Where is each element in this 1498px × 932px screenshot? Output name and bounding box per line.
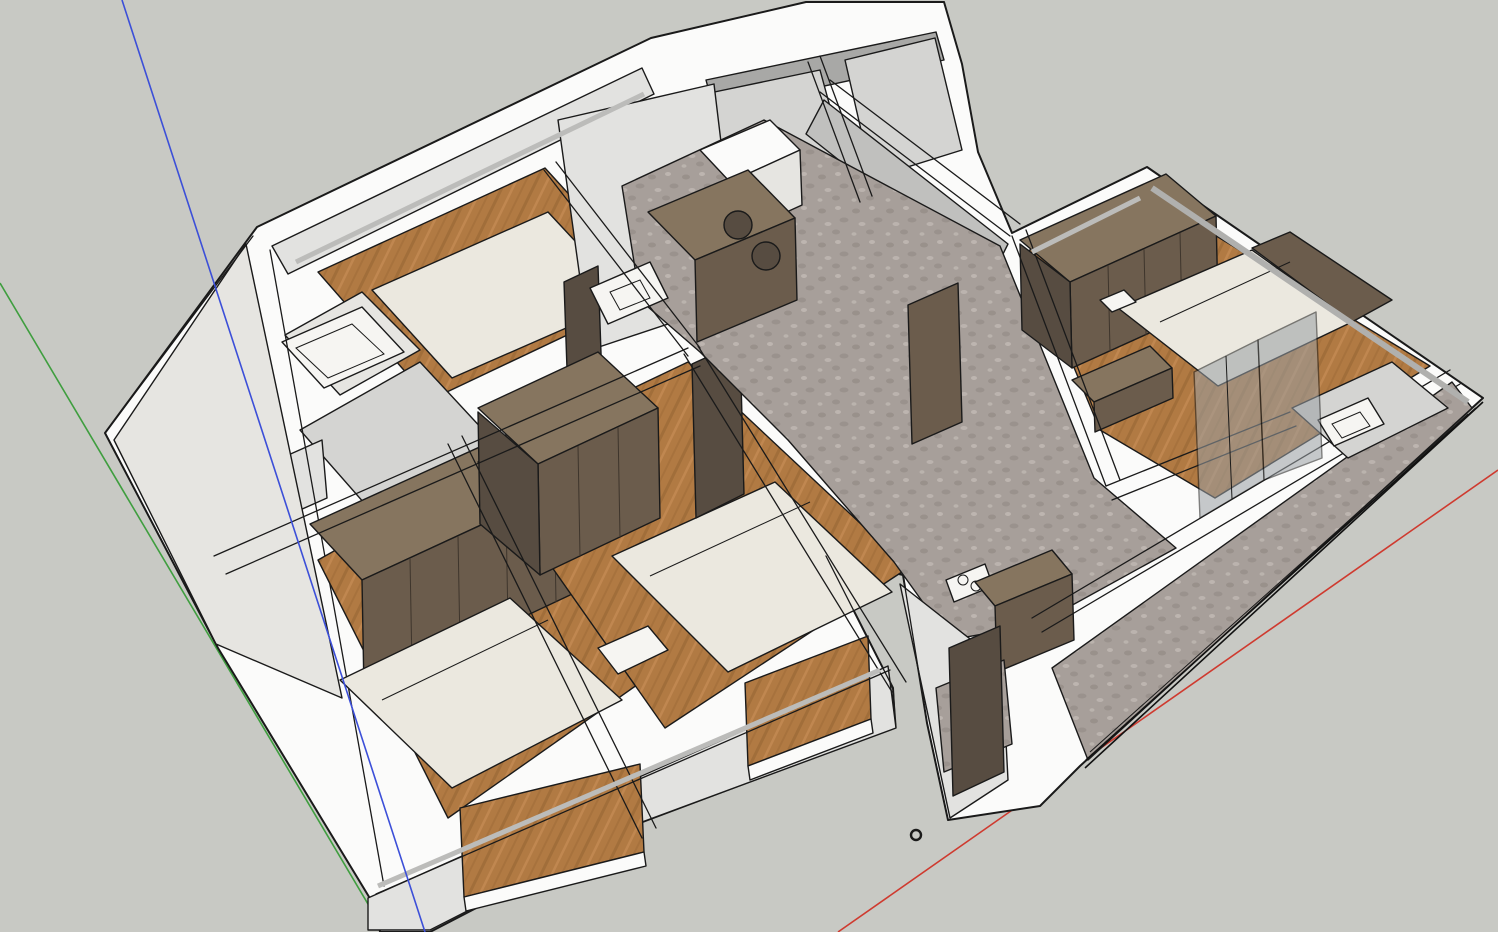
entry-door-panel (949, 626, 1004, 796)
viewport-canvas[interactable] (0, 0, 1498, 932)
chair-1 (724, 211, 752, 239)
door-panel-hallway (908, 283, 962, 444)
glass-door-2 (1258, 312, 1322, 480)
chair-2 (752, 242, 780, 270)
viewport-stage (0, 0, 1498, 932)
